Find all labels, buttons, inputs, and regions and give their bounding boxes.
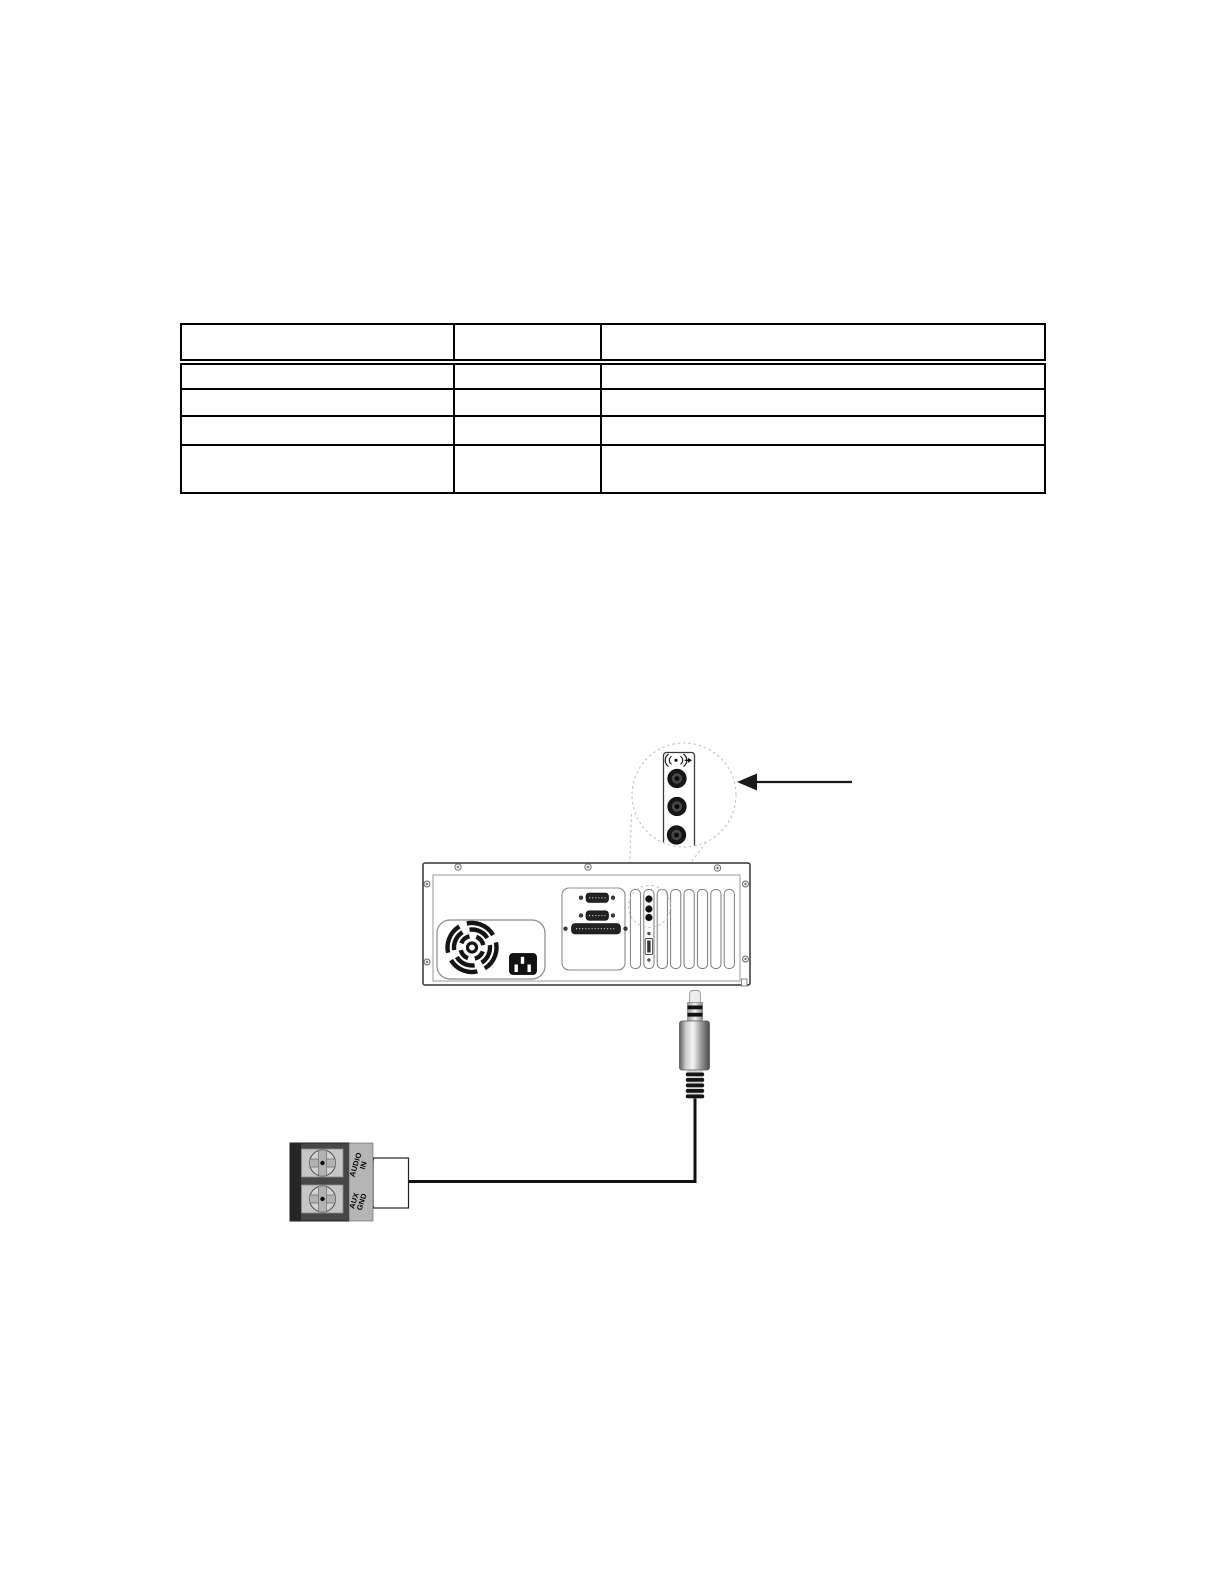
slot-cover: [684, 890, 694, 969]
audio-connection-figure: AUDIO IN AUX GND: [0, 0, 1224, 1584]
screw-icon: [585, 864, 591, 870]
plug-ring: [688, 1013, 703, 1017]
audio-cable: [409, 1099, 696, 1182]
callout-inset: [632, 743, 736, 850]
arrow-head: [737, 774, 757, 791]
plug-shaft: [688, 1003, 703, 1022]
db25-connector: [564, 924, 628, 935]
slot-cover: [711, 890, 721, 969]
chassis-tab: [742, 979, 748, 986]
terminal-block: AUDIO IN AUX GND: [290, 1143, 373, 1221]
screw-icon: [647, 932, 650, 935]
slot-cover: [724, 890, 734, 969]
terminal-edge: [290, 1143, 301, 1221]
terminal-screw: [310, 1186, 336, 1212]
game-port-slot: [647, 941, 650, 953]
jack-dot: [645, 914, 652, 921]
terminal-screw: [310, 1150, 336, 1176]
slot-cover: [697, 890, 707, 969]
inlet-prong: [521, 957, 524, 964]
jack-dot: [645, 895, 652, 902]
jack-dot: [645, 905, 652, 912]
screw-icon: [743, 881, 749, 887]
audio-plug: [680, 991, 710, 1099]
computer-rear-panel: [423, 863, 750, 986]
plug-barrel: [680, 1021, 710, 1070]
power-inlet: [510, 954, 537, 975]
audio-jack: [668, 797, 687, 816]
screw-icon: [743, 956, 749, 962]
inlet-prong: [515, 965, 518, 973]
screw-icon: [424, 881, 430, 887]
io-panel: [562, 888, 627, 970]
plug-ring: [688, 1006, 703, 1010]
slot-cover: [671, 890, 681, 969]
audio-jack: [668, 769, 687, 788]
slot-cover: [630, 890, 640, 969]
audio-jack: [667, 826, 686, 845]
inlet-prong: [528, 965, 531, 973]
slot-cover: [657, 890, 667, 969]
screw-icon: [424, 959, 430, 965]
callout-box: [373, 1158, 409, 1208]
screw-icon: [714, 865, 720, 871]
pointer-arrow: [737, 774, 852, 791]
screw-icon: [455, 864, 461, 870]
screw-icon: [647, 958, 650, 961]
power-supply: [437, 916, 545, 979]
plug-tip: [690, 991, 701, 1004]
manual-page: AUDIO IN AUX GND: [0, 0, 1224, 1584]
audio-jack-panel: [664, 753, 695, 850]
